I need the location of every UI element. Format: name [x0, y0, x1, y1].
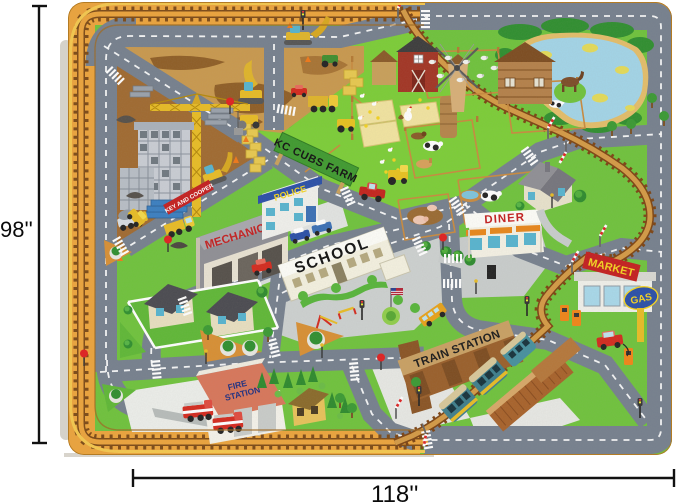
svg-text:98'': 98'' — [0, 217, 33, 242]
svg-text:118'': 118'' — [371, 481, 418, 502]
